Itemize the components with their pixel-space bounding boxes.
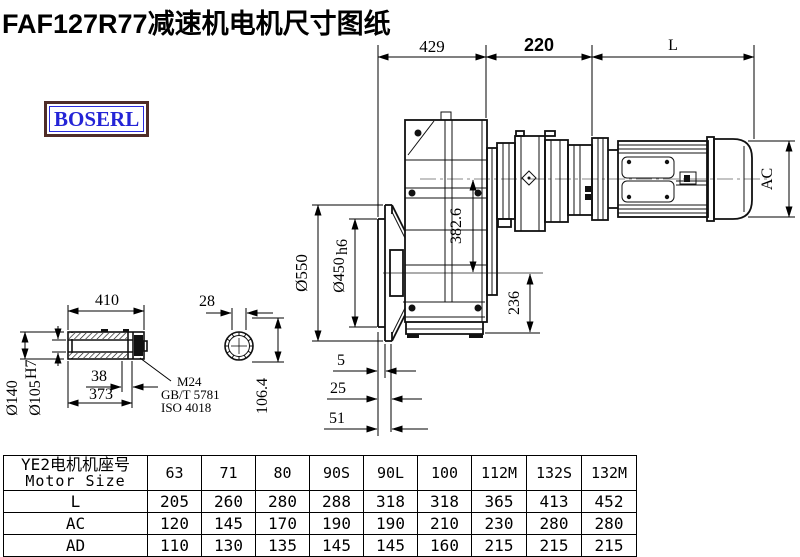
table-header-en: Motor Size: [4, 473, 147, 489]
dim-face-offset: 5: [337, 352, 345, 369]
shaft-hatch-top: [69, 333, 127, 339]
table-cell: 135: [256, 535, 310, 557]
dim-spigot-diameter: Ø450: [331, 257, 348, 293]
dim-hub-od: Ø140: [4, 380, 21, 416]
table-cell: 120: [148, 513, 202, 535]
dim-face-step: 25: [330, 380, 346, 397]
motor-size-table: YE2电机机座号 Motor Size 63 71 80 90S 90L 100…: [3, 455, 637, 557]
table-cell: 190: [364, 513, 418, 535]
table-cell: 215: [582, 535, 637, 557]
brand-logo: BOSERL: [44, 101, 149, 137]
dim-shaft-body: 373: [89, 386, 113, 403]
size-col-80: 80: [256, 456, 310, 491]
page-title: FAF127R77减速机电机尺寸图纸: [2, 2, 391, 41]
table-header-cn: YE2电机机座号: [4, 457, 147, 473]
dim-flange-od: Ø550: [292, 254, 311, 292]
bolt-standard-iso: ISO 4018: [161, 400, 211, 415]
table-header-cell: YE2电机机座号 Motor Size: [4, 456, 148, 491]
dim-axis-distance: 382.6: [448, 208, 465, 244]
shaft-section: [225, 332, 253, 360]
table-cell: 145: [364, 535, 418, 557]
table-cell: 205: [148, 491, 202, 513]
dim-cap-width: 38: [91, 368, 107, 385]
size-col-112m: 112M: [472, 456, 527, 491]
size-col-132s: 132S: [527, 456, 582, 491]
table-cell: 318: [418, 491, 472, 513]
table-cell: 145: [202, 513, 256, 535]
dim-shaft-total: 410: [95, 292, 119, 309]
table-cell: 190: [310, 513, 364, 535]
table-cell: 288: [310, 491, 364, 513]
dim-spigot-tolerance: h6: [334, 239, 351, 255]
size-col-63: 63: [148, 456, 202, 491]
size-col-132m: 132M: [582, 456, 637, 491]
table-cell: 170: [256, 513, 310, 535]
dim-adapter-length: 220: [524, 35, 554, 55]
table-header-row: YE2电机机座号 Motor Size 63 71 80 90S 90L 100…: [4, 456, 637, 491]
table-cell: 260: [202, 491, 256, 513]
dim-bore-tolerance: H7: [23, 359, 40, 379]
table-cell: 365: [472, 491, 527, 513]
table-cell: 280: [527, 513, 582, 535]
table-cell: 160: [418, 535, 472, 557]
row-label-AD: AD: [4, 535, 148, 557]
size-col-71: 71: [202, 456, 256, 491]
dim-end-height: 106.4: [254, 378, 271, 414]
size-col-90s: 90S: [310, 456, 364, 491]
table-cell: 452: [582, 491, 637, 513]
table-row-AD: AD 110 130 135 145 145 160 215 215 215: [4, 535, 637, 557]
table-cell: 130: [202, 535, 256, 557]
table-cell: 280: [582, 513, 637, 535]
brand-logo-text: BOSERL: [49, 106, 144, 132]
table-row-L: L 205 260 280 288 318 318 365 413 452: [4, 491, 637, 513]
dim-end-width: 28: [199, 293, 215, 310]
table-cell: 215: [527, 535, 582, 557]
row-label-AC: AC: [4, 513, 148, 535]
dim-motor-length: L: [668, 37, 678, 54]
shaft-hatch-bottom: [69, 353, 127, 358]
table-cell: 413: [527, 491, 582, 513]
input-adapter-bolts: [528, 177, 592, 201]
dim-face-total: 51: [329, 410, 345, 427]
dim-motor-od: AC: [759, 168, 776, 190]
table-cell: 110: [148, 535, 202, 557]
dimension-labels: 429 220 L Ø550 Ø450 h6 382.6 236 AC 5 25…: [4, 35, 776, 427]
table-cell: 210: [418, 513, 472, 535]
table-cell: 145: [310, 535, 364, 557]
size-col-90l: 90L: [364, 456, 418, 491]
dim-center-to-base: 236: [506, 291, 523, 315]
input-adapter: [497, 131, 592, 231]
table-cell: 215: [472, 535, 527, 557]
size-col-100: 100: [418, 456, 472, 491]
table-cell: 230: [472, 513, 527, 535]
table-row-AC: AC 120 145 170 190 190 210 230 280 280: [4, 513, 637, 535]
table-cell: 280: [256, 491, 310, 513]
dim-bore-diameter: Ø105: [27, 380, 44, 416]
dim-gearbox-width: 429: [419, 37, 445, 56]
row-label-L: L: [4, 491, 148, 513]
table-cell: 318: [364, 491, 418, 513]
